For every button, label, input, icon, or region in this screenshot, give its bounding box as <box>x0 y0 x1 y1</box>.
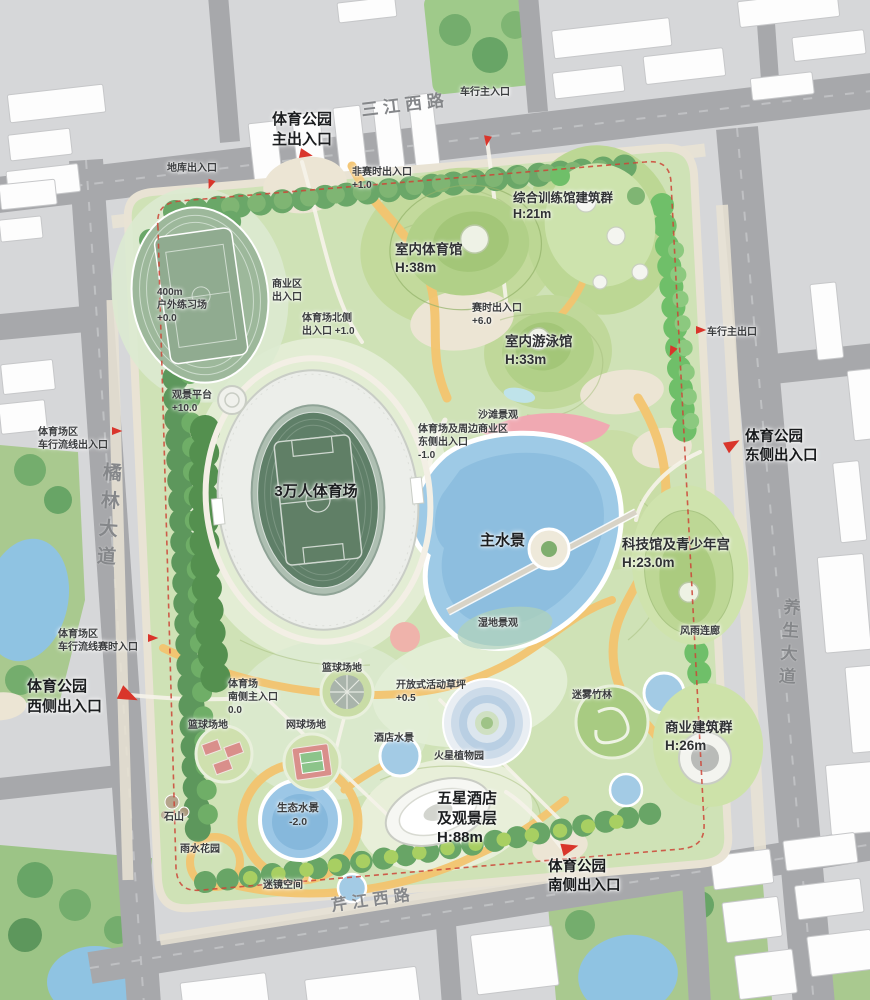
label-east-gate: 体育公园 东侧出入口 <box>745 428 818 466</box>
label-bamboo: 迷雾竹林 <box>572 689 612 702</box>
label-commerce-cluster: 商业建筑群 H:26m <box>665 719 733 754</box>
label-eco-water: 生态水景 -2.0 <box>277 802 319 829</box>
label-basketball-lower: 篮球场地 <box>188 719 228 732</box>
label-stadium-south-entry: 体育场 南侧主入口 0.0 <box>228 678 278 717</box>
site-plan-graphics <box>0 0 870 1000</box>
label-viewing-platform: 观景平台 +10.0 <box>172 389 212 415</box>
label-mars-garden: 火星植物园 <box>434 750 484 763</box>
label-car-main-in: 车行主入口 <box>460 86 510 99</box>
label-track-400m: 400m 户外练习场 +0.0 <box>157 286 207 325</box>
label-stadium: 3万人体育场 <box>274 482 357 502</box>
label-car-main-out: 车行主出口 <box>707 326 757 339</box>
label-tech-museum: 科技馆及青少年宫 H:23.0m <box>622 536 730 571</box>
label-stadium-biz-east-entry: 体育场及周边商业区 东侧出入口 -1.0 <box>418 423 508 462</box>
label-basketball-upper: 篮球场地 <box>322 662 362 675</box>
label-hotel-water: 酒店水景 <box>374 732 414 745</box>
label-west-flow-event-entry: 体育场区 车行流线赛时入口 <box>58 628 138 654</box>
label-garage-entry: 地库出入口 <box>167 162 217 175</box>
label-tennis: 网球场地 <box>286 719 326 732</box>
label-stadium-north-entry: 体育场北侧 出入口 +1.0 <box>302 312 355 338</box>
label-event-entry: 赛时出入口 +6.0 <box>472 302 522 328</box>
label-beach: 沙滩景观 <box>478 409 518 422</box>
label-main-gate: 体育公园 主出入口 <box>272 110 332 149</box>
label-business-entry: 商业区 出入口 <box>272 278 302 304</box>
label-indoor-gym: 室内体育馆 H:38m <box>395 241 463 276</box>
pink-garden <box>390 622 420 652</box>
label-swimming-hall: 室内游泳馆 H:33m <box>505 333 573 368</box>
label-training-cluster: 综合训练馆建筑群 H:21m <box>513 190 613 223</box>
label-main-water: 主水景 <box>480 531 525 551</box>
label-south-gate: 体育公园 南侧出入口 <box>548 858 621 896</box>
label-non-event-entry: 非赛时出入口 +1.0 <box>352 166 412 192</box>
label-rain-garden: 雨水花园 <box>180 843 220 856</box>
viewing-platform <box>218 386 246 414</box>
label-rock: 石山 <box>164 811 184 824</box>
label-west-flow-entry: 体育场区 车行流线出入口 <box>38 426 108 452</box>
label-west-gate: 体育公园 西侧出入口 <box>27 677 102 716</box>
label-lawn: 开放式活动草坪 +0.5 <box>396 679 466 705</box>
label-corridor: 风雨连廊 <box>680 625 720 638</box>
master-plan: 三江西路 橘林大道 养生大道 芹江西路 体育公园 主出入口 体育公园 东侧出入口… <box>0 0 870 1000</box>
label-mirror-space: 迷镜空间 <box>263 879 303 892</box>
label-wetland: 湿地景观 <box>478 617 518 630</box>
label-hotel: 五星酒店 及观景层 H:88m <box>437 789 497 848</box>
